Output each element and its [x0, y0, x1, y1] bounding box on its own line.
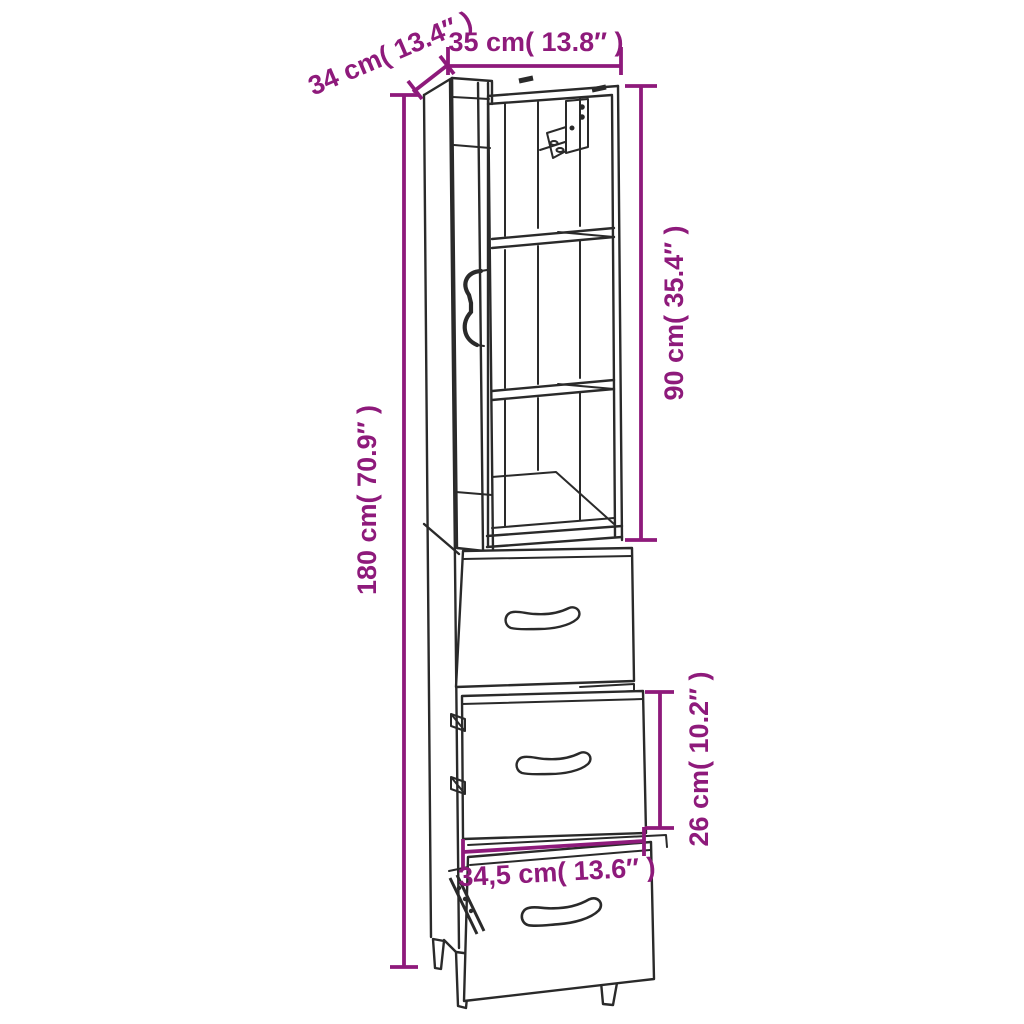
- dimension-line: [413, 64, 449, 92]
- shelf-lower: [492, 380, 614, 400]
- diagram-stage: 34 cm( 13.4″ ) 35 cm( 13.8″ ) 90 cm( 35.…: [0, 0, 1024, 1024]
- dimension-drawer-height: 26 cm( 10.2″ ): [645, 671, 714, 846]
- dimension-total-height: 180 cm( 70.9″ ): [352, 95, 418, 967]
- cabinet-dimension-diagram: 34 cm( 13.4″ ) 35 cm( 13.8″ ) 90 cm( 35.…: [0, 0, 1024, 1024]
- dimension-label-total-height: 180 cm( 70.9″ ): [352, 405, 382, 595]
- dimension-label-width: 35 cm( 13.8″ ): [448, 27, 623, 57]
- shelf-upper: [492, 228, 614, 248]
- dimension-upper-height: 90 cm( 35.4″ ): [625, 86, 689, 540]
- dimension-width: 35 cm( 13.8″ ): [448, 27, 624, 75]
- drawer-2: [462, 691, 646, 839]
- drawer-1: [456, 548, 634, 687]
- dimension-label-upper-height: 90 cm( 35.4″ ): [659, 225, 689, 400]
- door-handle: [465, 270, 487, 346]
- dimension-label-drawer-height: 26 cm( 10.2″ ): [684, 671, 714, 846]
